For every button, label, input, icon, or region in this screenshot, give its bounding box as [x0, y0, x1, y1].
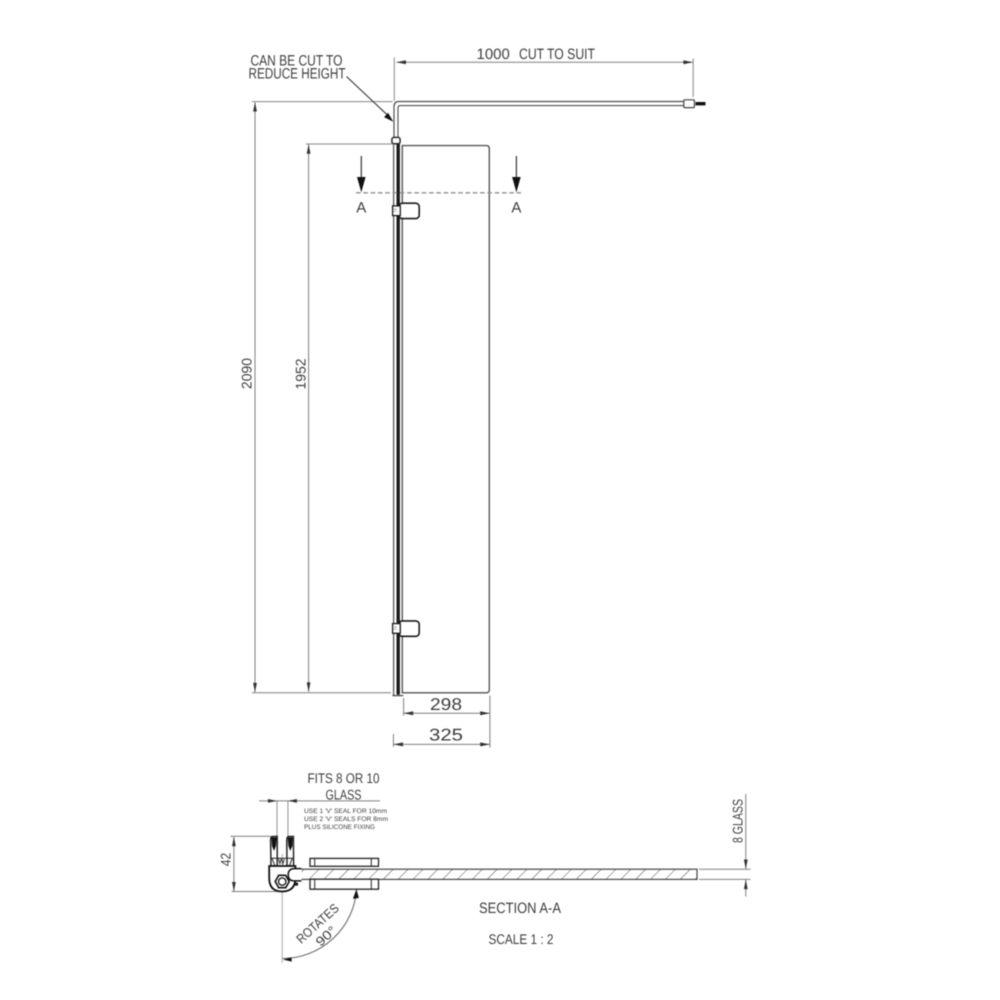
- svg-text:A: A: [511, 200, 521, 217]
- svg-text:CUT TO SUIT: CUT TO SUIT: [519, 46, 595, 63]
- svg-text:USE 1 'V' SEAL FOR 10mm: USE 1 'V' SEAL FOR 10mm: [304, 808, 388, 815]
- svg-text:2090: 2090: [239, 358, 255, 389]
- svg-text:1952: 1952: [293, 358, 309, 389]
- svg-text:REDUCE HEIGHT: REDUCE HEIGHT: [249, 65, 346, 82]
- svg-text:FITS 8 OR 10: FITS 8 OR 10: [308, 770, 380, 786]
- svg-text:1000: 1000: [477, 46, 510, 63]
- svg-text:298: 298: [430, 695, 462, 714]
- svg-text:USE 2 'V' SEALS FOR 8mm: USE 2 'V' SEALS FOR 8mm: [304, 816, 389, 823]
- svg-text:42: 42: [218, 853, 234, 867]
- svg-text:PLUS SILICONE FIXING: PLUS SILICONE FIXING: [304, 824, 375, 831]
- svg-text:SECTION A-A: SECTION A-A: [479, 900, 561, 917]
- svg-text:SCALE 1 : 2: SCALE 1 : 2: [489, 931, 554, 947]
- svg-text:A: A: [356, 200, 366, 217]
- svg-text:325: 325: [429, 726, 463, 745]
- svg-text:8 GLASS: 8 GLASS: [729, 799, 745, 843]
- svg-text:GLASS: GLASS: [326, 787, 362, 803]
